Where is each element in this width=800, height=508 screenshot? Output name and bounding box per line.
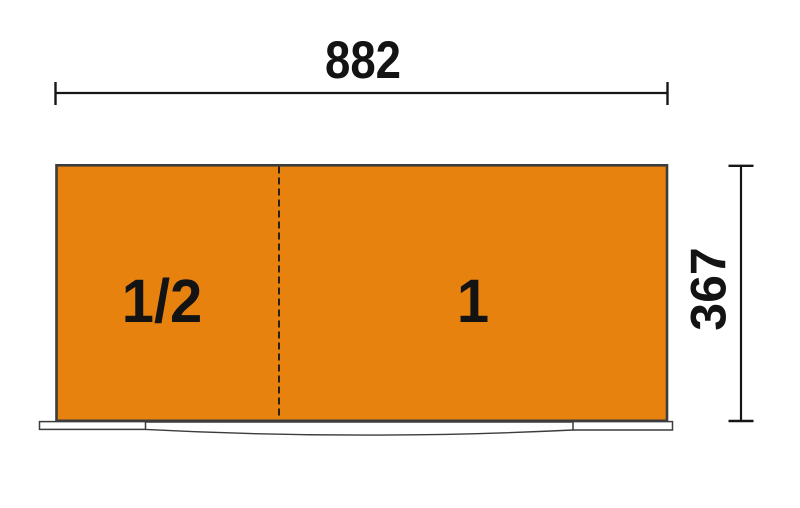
module-panel: 1/2 1 [57,165,668,420]
base-tray-left-cap [40,422,146,430]
module-left-label: 1/2 [122,267,203,336]
top-width-dimension: 882 [56,31,668,105]
base-tray [40,422,673,436]
base-tray-right-cap [573,422,673,430]
base-tray-bowed-edge [146,429,574,435]
technical-drawing-canvas: 882 1/2 1 367 [0,0,800,508]
module-right-label: 1 [457,267,489,336]
width-dimension-value: 882 [325,31,401,90]
worktop-dimension-diagram: 882 1/2 1 367 [0,0,800,508]
right-height-dimension: 367 [681,166,754,421]
height-dimension-value: 367 [681,247,737,330]
